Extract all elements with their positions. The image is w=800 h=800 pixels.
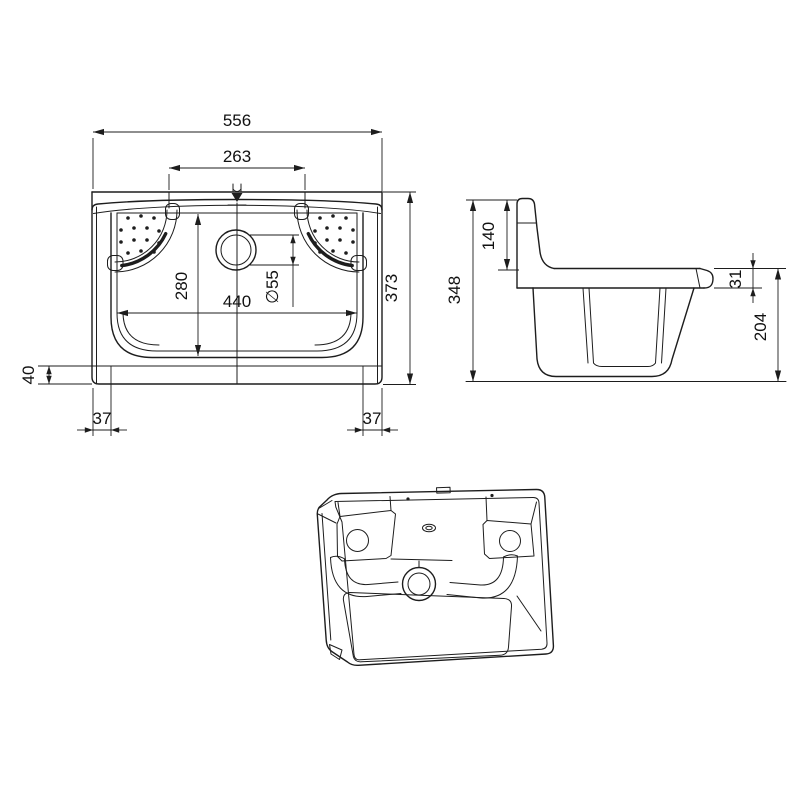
persp-back-ledge-line <box>391 559 452 568</box>
dim-bowl-depth-front: 280 <box>172 214 198 356</box>
persp-drain-inner <box>408 573 430 595</box>
dim-tap-hole-spacing-label: 263 <box>223 147 251 166</box>
persp-deck-dot-left <box>406 497 409 500</box>
dim-wall-offset-right: 37 <box>347 366 398 436</box>
faucet-center-mark-icon <box>228 184 246 205</box>
dim-drain-diameter: ∅55 <box>250 235 299 307</box>
persp-trough-right <box>447 555 518 598</box>
dim-drain-diameter-label: ∅55 <box>263 270 282 304</box>
persp-trough-left <box>331 556 402 596</box>
dim-bowl-width-label: 440 <box>223 292 251 311</box>
side-inner-floor <box>594 363 656 367</box>
persp-dish-right-edges <box>486 497 537 524</box>
persp-dish-right <box>483 521 534 559</box>
persp-deck-inner-line <box>335 497 547 659</box>
persp-overflow-outer <box>423 524 436 532</box>
dim-bowl-depth-side: 204 <box>751 269 778 382</box>
persp-top-notch <box>437 487 451 493</box>
side-backsplash-outline <box>517 199 554 289</box>
side-sump-walls <box>583 288 666 363</box>
dim-wall-offset-left: 37 <box>77 366 127 436</box>
dim-side-overall-height-label: 348 <box>445 276 464 304</box>
dim-plinth-height-label: 40 <box>19 366 38 385</box>
dim-backsplash-height-label: 140 <box>479 222 498 250</box>
persp-overflow-inner <box>426 526 432 529</box>
dim-wall-offset-left-label: 37 <box>93 409 112 428</box>
persp-dish-left-hole <box>347 530 369 552</box>
dim-front-overall-height-label: 373 <box>382 274 401 302</box>
persp-right-corner-seam <box>517 596 541 631</box>
side-rim-lip <box>700 269 713 289</box>
dim-plinth-height: 40 <box>19 366 92 385</box>
side-lip-seam <box>696 269 700 289</box>
soap-dish-left <box>108 204 180 273</box>
dim-backsplash-height: 140 <box>479 200 519 270</box>
drain-hole-inner <box>221 235 251 265</box>
dim-tap-hole-spacing: 263 <box>169 147 305 190</box>
dim-bowl-depth-side-label: 204 <box>751 313 770 341</box>
drain-hole-outer <box>216 230 256 270</box>
dim-overall-width-label: 556 <box>223 111 251 130</box>
dim-rim-thickness: 31 <box>714 253 786 303</box>
soap-dish-right <box>295 204 367 273</box>
dim-bowl-width: 440 <box>117 292 357 313</box>
front-view: 556 263 373 280 440 ∅55 <box>19 111 416 436</box>
technical-drawing-canvas: 556 263 373 280 440 ∅55 <box>0 0 800 800</box>
dim-front-overall-height: 373 <box>382 192 416 385</box>
side-view: 348 140 31 204 <box>445 199 786 382</box>
persp-dish-left <box>337 511 396 562</box>
dim-rim-thickness-label: 31 <box>726 270 745 289</box>
perspective-view <box>317 487 553 665</box>
side-bowl-outline <box>533 288 694 377</box>
drawing-page: 556 263 373 280 440 ∅55 <box>0 0 800 800</box>
persp-bowl-floor <box>343 593 511 662</box>
persp-dish-right-hole <box>500 531 521 552</box>
dim-bowl-depth-front-label: 280 <box>172 272 191 300</box>
dim-wall-offset-right-label: 37 <box>363 409 382 428</box>
persp-deck-dot-right <box>490 494 493 497</box>
